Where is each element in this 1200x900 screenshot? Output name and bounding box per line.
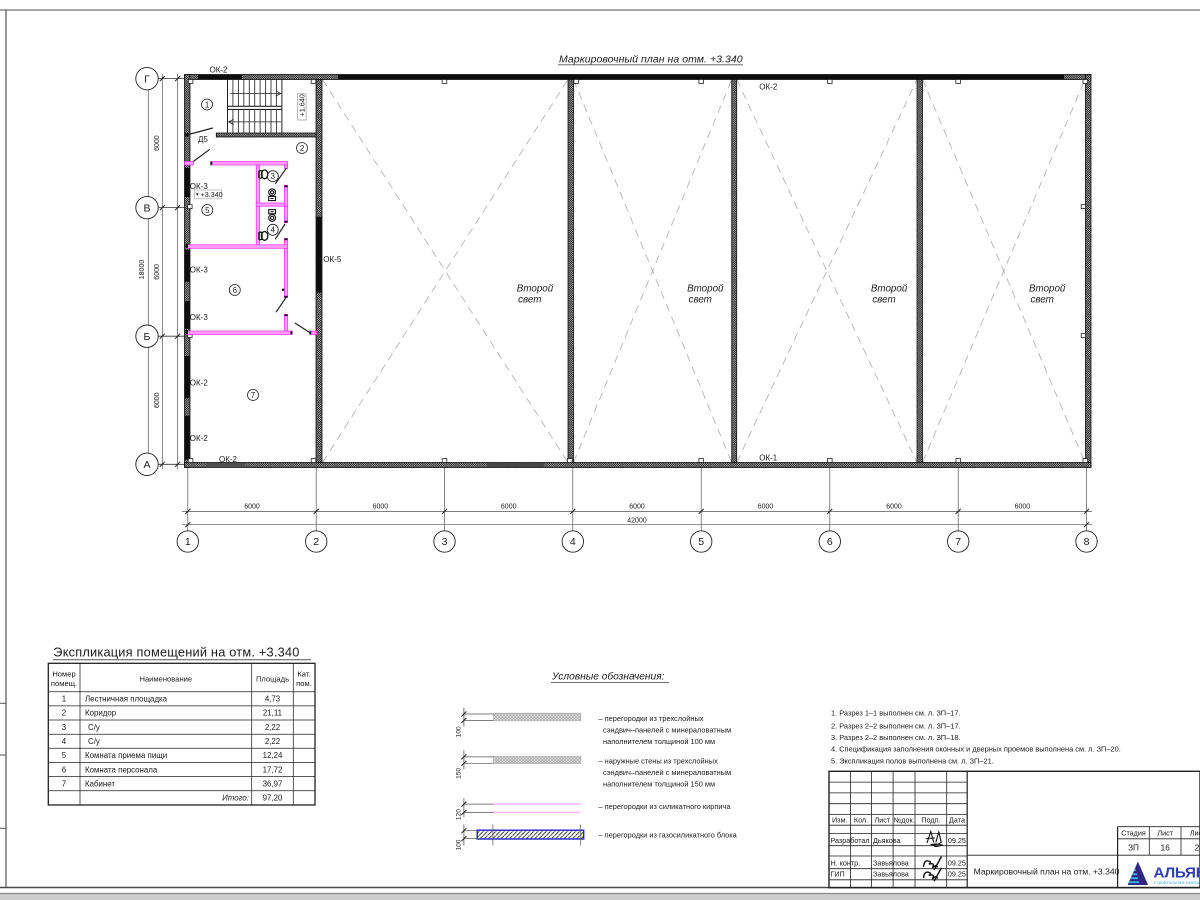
svg-text:– перегородки из силикатного к: – перегородки из силикатного кирпича: [599, 802, 732, 811]
svg-text:Стадия: Стадия: [1121, 829, 1146, 838]
svg-text:6000: 6000: [886, 504, 902, 511]
svg-text:ОК-2: ОК-2: [210, 65, 229, 74]
svg-text:В: В: [143, 202, 150, 214]
svg-text:Лис: Лис: [1190, 829, 1200, 838]
svg-text:ОК-3: ОК-3: [190, 266, 209, 275]
svg-text:4: 4: [271, 226, 276, 235]
svg-text:Второй: Второй: [687, 283, 724, 294]
svg-text:Второй: Второй: [517, 283, 554, 294]
svg-text:ОК-2: ОК-2: [190, 434, 209, 443]
svg-text:сэндвич–панелей с минераловатн: сэндвич–панелей с минераловатным: [603, 768, 731, 777]
svg-text:2: 2: [62, 709, 66, 718]
svg-text:1: 1: [205, 100, 209, 109]
svg-text:3: 3: [271, 172, 275, 181]
svg-text:Завьялова: Завьялова: [873, 858, 909, 867]
svg-text:ОК-1: ОК-1: [759, 454, 778, 463]
svg-text:+3.340: +3.340: [201, 190, 223, 199]
svg-text:2,22: 2,22: [265, 737, 280, 746]
svg-text:ОК-2: ОК-2: [759, 82, 778, 91]
svg-text:6000: 6000: [154, 264, 161, 280]
svg-text:120: 120: [456, 809, 463, 820]
svg-text:ОК-5: ОК-5: [323, 255, 342, 264]
svg-text:ОК-2: ОК-2: [219, 455, 238, 464]
svg-text:Итого:: Итого:: [222, 794, 249, 803]
svg-text:4,73: 4,73: [265, 695, 281, 704]
svg-text:6000: 6000: [758, 504, 774, 511]
svg-text:5: 5: [62, 751, 67, 760]
svg-text:Подп.: Подп.: [921, 816, 940, 825]
svg-text:5: 5: [698, 536, 704, 548]
svg-text:наполнителем толщиной 150 мм: наполнителем толщиной 150 мм: [603, 780, 715, 789]
svg-text:21,11: 21,11: [263, 709, 282, 718]
svg-text:Наименование: Наименование: [139, 675, 192, 684]
svg-text:А: А: [143, 459, 150, 471]
svg-text:сэндвич–панелей с минераловатн: сэндвич–панелей с минераловатным: [603, 726, 731, 735]
svg-text:100: 100: [456, 726, 463, 737]
svg-text:42000: 42000: [627, 517, 647, 524]
svg-text:1. Разрез 1–1 выполнен см. л.: 1. Разрез 1–1 выполнен см. л. ЗП–17.: [831, 709, 961, 718]
svg-text:Разработал: Разработал: [831, 836, 870, 845]
svg-text:Б: Б: [144, 331, 151, 343]
svg-text:3. Разрез 2–2 выполнен см. л.: 3. Разрез 2–2 выполнен см. л. ЗП–18.: [831, 733, 961, 742]
svg-text:Маркировочный план на отм. +3.: Маркировочный план на отм. +3.340: [559, 54, 743, 66]
svg-text:7: 7: [251, 391, 255, 400]
svg-text:Кол.: Кол.: [854, 816, 868, 825]
svg-text:09.25: 09.25: [948, 870, 966, 879]
svg-text:Условные обозначения:: Условные обозначения:: [551, 671, 665, 683]
svg-text:16: 16: [1161, 844, 1171, 853]
svg-text:ОК-3: ОК-3: [190, 313, 209, 322]
svg-text:6: 6: [827, 536, 833, 548]
svg-text:6000: 6000: [501, 504, 517, 511]
svg-text:5. Экспликация полов выполнена: 5. Экспликация полов выполнена см. л. ЗП…: [831, 757, 994, 766]
svg-text:4: 4: [62, 737, 67, 746]
svg-text:36,97: 36,97: [263, 780, 283, 789]
svg-text:5: 5: [205, 206, 210, 215]
svg-text:– перегородки из трехслойных: – перегородки из трехслойных: [599, 714, 704, 723]
svg-text:Изм.: Изм.: [832, 816, 847, 825]
svg-text:2: 2: [313, 536, 319, 548]
svg-text:свет: свет: [1030, 294, 1053, 305]
svg-text:7: 7: [955, 536, 961, 548]
svg-text:– перегородки из газосиликатно: – перегородки из газосиликатного блока: [599, 830, 738, 839]
svg-text:150: 150: [456, 767, 463, 778]
svg-text:09.25: 09.25: [948, 858, 966, 867]
svg-text:АЛЬЯНС: АЛЬЯНС: [1154, 864, 1200, 881]
svg-text:Лестничная площадка: Лестничная площадка: [85, 695, 168, 704]
svg-text:2. Разрез 2–2 выполнен см. л.: 2. Разрез 2–2 выполнен см. л. ЗП–17.: [831, 721, 961, 730]
svg-text:Маркировочный план на отм. +3.: Маркировочный план на отм. +3.340: [974, 866, 1120, 876]
svg-text:6: 6: [62, 765, 67, 774]
svg-text:Г: Г: [144, 73, 150, 85]
svg-text:ОК-2: ОК-2: [190, 378, 209, 387]
svg-text:Дьякова: Дьякова: [873, 836, 900, 845]
svg-text:17,72: 17,72: [263, 765, 283, 774]
svg-text:3: 3: [62, 723, 67, 732]
svg-text:– наружные стены из трехслойны: – наружные стены из трехслойных: [599, 757, 719, 766]
svg-text:Кат.: Кат.: [297, 670, 310, 679]
svg-text:1: 1: [185, 536, 191, 548]
svg-text:09.25: 09.25: [948, 836, 966, 845]
svg-text:помещ.: помещ.: [51, 679, 77, 688]
svg-text:97,20: 97,20: [263, 794, 283, 803]
svg-text:18000: 18000: [139, 260, 146, 280]
svg-text:Дата: Дата: [949, 816, 965, 825]
svg-text:2: 2: [1195, 844, 1200, 853]
svg-text:№док.: №док.: [894, 816, 915, 825]
svg-text:С/у: С/у: [88, 723, 100, 732]
svg-text:Коридор: Коридор: [85, 709, 117, 718]
svg-text:свет: свет: [689, 294, 712, 305]
svg-text:Второй: Второй: [1029, 283, 1066, 294]
svg-text:4: 4: [570, 536, 576, 548]
svg-text:наполнителем толщиной 100 мм: наполнителем толщиной 100 мм: [603, 737, 715, 746]
svg-text:свет: свет: [518, 294, 541, 305]
svg-text:2: 2: [300, 144, 304, 153]
svg-text:ОК-3: ОК-3: [190, 182, 209, 191]
svg-text:6000: 6000: [373, 504, 389, 511]
svg-text:пом.: пом.: [296, 679, 312, 688]
svg-text:6000: 6000: [1015, 504, 1031, 511]
svg-text:Завьялова: Завьялова: [873, 870, 909, 879]
svg-text:6000: 6000: [244, 504, 260, 511]
svg-text:6000: 6000: [154, 135, 161, 151]
svg-text:8: 8: [1084, 536, 1090, 548]
svg-text:6000: 6000: [629, 504, 645, 511]
svg-text:Лист: Лист: [874, 816, 890, 825]
svg-text:1: 1: [62, 695, 66, 704]
svg-text:7: 7: [62, 780, 66, 789]
svg-text:6: 6: [233, 286, 237, 295]
svg-text:6000: 6000: [154, 392, 161, 408]
svg-text:ГИП: ГИП: [831, 870, 845, 879]
svg-text:Лист: Лист: [1157, 829, 1173, 838]
svg-text:Д5: Д5: [198, 135, 208, 144]
svg-text:12,24: 12,24: [263, 751, 283, 760]
svg-text:строительная компания: строительная компания: [1154, 880, 1200, 885]
svg-text:4. Спецификация заполнения око: 4. Спецификация заполнения оконных и две…: [831, 745, 1121, 754]
svg-text:Комната персонала: Комната персонала: [85, 765, 158, 774]
svg-text:Кабинет: Кабинет: [85, 780, 115, 789]
svg-text:3: 3: [442, 536, 448, 548]
svg-text:Н. контр.: Н. контр.: [831, 858, 861, 867]
svg-text:Экспликация помещений на отм.: Экспликация помещений на отм. +3.340: [53, 645, 299, 660]
svg-text:свет: свет: [872, 294, 895, 305]
svg-text:Площадь: Площадь: [256, 675, 289, 684]
svg-text:Второй: Второй: [871, 283, 908, 294]
svg-text:Номер: Номер: [52, 670, 75, 679]
svg-text:+1.640: +1.640: [297, 94, 306, 116]
svg-text:Комната приема пищи: Комната приема пищи: [85, 751, 167, 760]
svg-text:С/у: С/у: [88, 737, 100, 746]
svg-text:100: 100: [456, 839, 463, 850]
svg-text:2,22: 2,22: [265, 723, 280, 732]
svg-text:ЗП: ЗП: [1128, 844, 1139, 853]
